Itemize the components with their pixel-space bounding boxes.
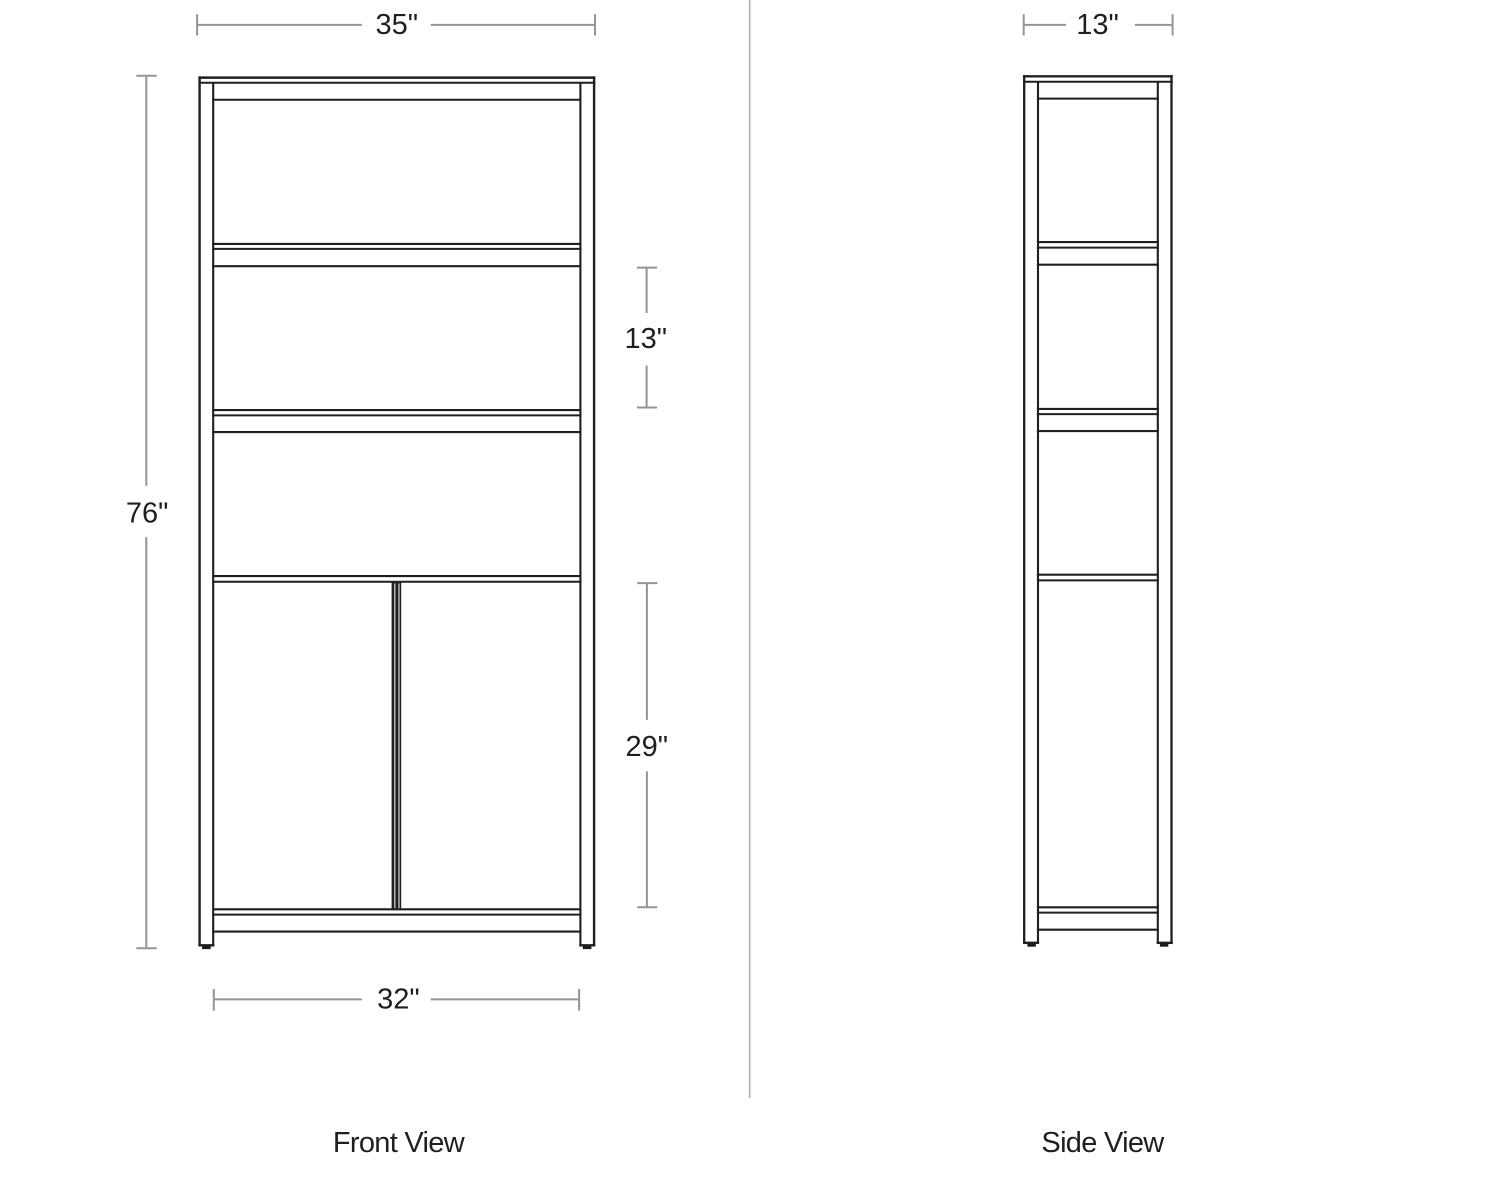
- svg-text:76": 76": [126, 498, 169, 530]
- svg-text:Side View: Side View: [1041, 1127, 1165, 1159]
- svg-text:35": 35": [376, 9, 419, 41]
- svg-text:13": 13": [625, 323, 668, 355]
- svg-text:29": 29": [626, 731, 669, 763]
- svg-text:13": 13": [1076, 9, 1119, 41]
- svg-text:32": 32": [377, 983, 420, 1015]
- svg-text:Front View: Front View: [333, 1127, 466, 1159]
